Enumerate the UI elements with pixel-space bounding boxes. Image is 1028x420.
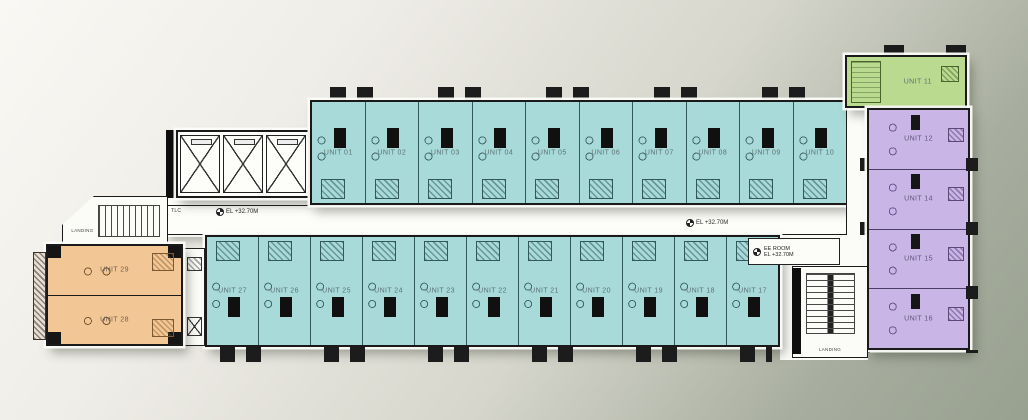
balcony-ledge-bottom <box>220 347 772 362</box>
unit-15: UNIT 15 <box>869 230 968 290</box>
elevation-marker-icon <box>686 219 694 227</box>
unit-label: UNIT 02 <box>377 149 406 156</box>
unit-label: UNIT 26 <box>270 288 299 295</box>
utility-shaft <box>183 248 205 346</box>
unit-24: UNIT 24 <box>363 237 415 345</box>
level-text: EL +32.70M <box>696 220 728 226</box>
unit-20: UNIT 20 <box>571 237 623 345</box>
floor-plan-canvas: LANDING UNIT 01 UNIT 02 UNIT 03 UNIT 04 … <box>0 0 1028 420</box>
unit-label: UNIT 08 <box>698 149 727 156</box>
elevator-shaft-wall <box>166 130 176 198</box>
ee-room: EE ROOM EL +32.70M <box>748 238 840 265</box>
unit-29: UNIT 29 <box>48 246 181 296</box>
unit-01: UNIT 01 <box>312 102 366 203</box>
corridor-level-mark: EL +32.70M <box>216 208 258 216</box>
unit-label: UNIT 10 <box>805 149 834 156</box>
unit-21: UNIT 21 <box>519 237 571 345</box>
unit-label: UNIT 12 <box>904 136 933 143</box>
unit-label: UNIT 04 <box>484 149 513 156</box>
elevator-cab-icon <box>180 135 220 193</box>
bottom-unit-row: UNIT 27 UNIT 26 UNIT 25 UNIT 24 UNIT 23 … <box>205 235 780 347</box>
unit-22: UNIT 22 <box>467 237 519 345</box>
unit-label: UNIT 27 <box>218 288 247 295</box>
unit-label: UNIT 25 <box>322 288 351 295</box>
corner-unit-block: UNIT 29 UNIT 28 <box>46 244 183 346</box>
unit-label: UNIT 05 <box>538 149 567 156</box>
unit-label: UNIT 28 <box>100 316 129 323</box>
unit-26: UNIT 26 <box>259 237 311 345</box>
unit-19: UNIT 19 <box>623 237 675 345</box>
unit-label: UNIT 18 <box>686 288 715 295</box>
ee-room-level: EL +32.70M <box>764 252 794 258</box>
elevator-bank <box>176 130 310 198</box>
unit-label: UNIT 17 <box>738 288 767 295</box>
unit-label: UNIT 23 <box>426 288 455 295</box>
unit-18: UNIT 18 <box>675 237 727 345</box>
unit-label: UNIT 03 <box>431 149 460 156</box>
stair-landing-label: LANDING <box>71 228 93 233</box>
unit-label: UNIT 09 <box>752 149 781 156</box>
corridor-level-mark: EL +32.70M <box>686 219 728 227</box>
stairwell-wall <box>792 268 801 354</box>
stairwell-left: LANDING <box>62 196 168 246</box>
level-text: EL +32.70M <box>226 209 258 215</box>
unit-16: UNIT 16 <box>869 289 968 348</box>
unit-label: UNIT 29 <box>100 267 129 274</box>
east-unit-column: UNIT 12 UNIT 14 UNIT 15 UNIT 16 <box>867 108 970 350</box>
unit-14: UNIT 14 <box>869 170 968 230</box>
balcony-ledge-top <box>330 87 842 101</box>
balcony-ledge-east-right <box>966 158 978 353</box>
corridor <box>166 205 867 235</box>
unit-28: UNIT 28 <box>48 296 181 345</box>
unit-label: UNIT 19 <box>634 288 663 295</box>
top-unit-row: UNIT 01 UNIT 02 UNIT 03 UNIT 04 UNIT 05 … <box>310 100 848 205</box>
unit-04: UNIT 04 <box>473 102 527 203</box>
elevator-cab-icon <box>266 135 306 193</box>
stairwell-right: LANDING <box>792 266 868 358</box>
unit-09: UNIT 09 <box>740 102 794 203</box>
elevator-cab-icon <box>223 135 263 193</box>
unit-label: UNIT 21 <box>530 288 559 295</box>
unit-06: UNIT 06 <box>580 102 634 203</box>
closet-label: TLC <box>171 208 181 214</box>
elevation-marker-icon <box>753 248 761 256</box>
unit-25: UNIT 25 <box>311 237 363 345</box>
unit-10: UNIT 10 <box>794 102 847 203</box>
unit-label: UNIT 14 <box>904 196 933 203</box>
unit-08: UNIT 08 <box>687 102 741 203</box>
stair-landing-label: LANDING <box>793 347 867 352</box>
west-balcony <box>33 252 46 340</box>
unit-23: UNIT 23 <box>415 237 467 345</box>
unit-label: UNIT 20 <box>582 288 611 295</box>
unit-11: UNIT 11 <box>845 55 967 108</box>
unit-label: UNIT 15 <box>904 255 933 262</box>
elevation-marker-icon <box>216 208 224 216</box>
unit-label: UNIT 11 <box>904 78 932 85</box>
unit-label: UNIT 16 <box>904 315 933 322</box>
unit-27: UNIT 27 <box>207 237 259 345</box>
unit-05: UNIT 05 <box>526 102 580 203</box>
unit-02: UNIT 02 <box>366 102 420 203</box>
unit-label: UNIT 24 <box>374 288 403 295</box>
unit-12: UNIT 12 <box>869 110 968 170</box>
unit-03: UNIT 03 <box>419 102 473 203</box>
unit-label: UNIT 06 <box>591 149 620 156</box>
unit-label: UNIT 01 <box>324 149 353 156</box>
unit-label: UNIT 22 <box>478 288 507 295</box>
unit-07: UNIT 07 <box>633 102 687 203</box>
unit-label: UNIT 07 <box>645 149 674 156</box>
